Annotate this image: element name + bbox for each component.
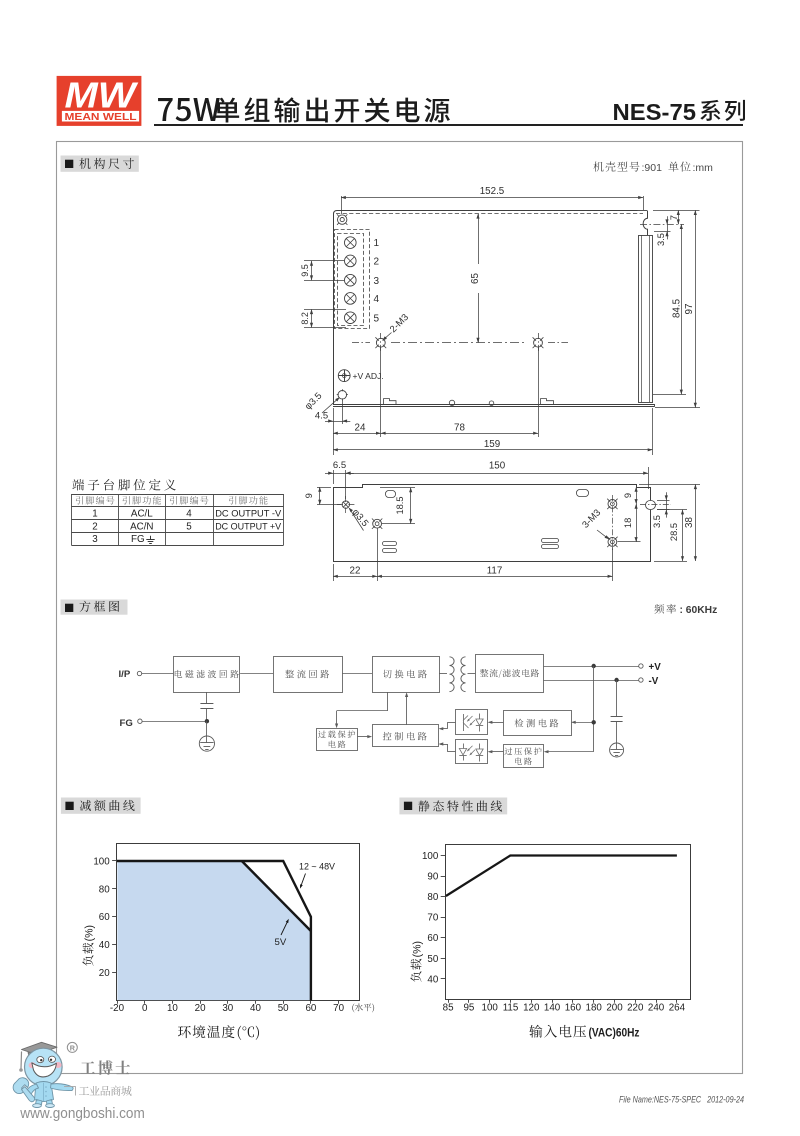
svg-text:FG: FG bbox=[120, 718, 133, 729]
svg-text:-V: -V bbox=[649, 676, 659, 687]
svg-text:(VAC)60Hz: (VAC)60Hz bbox=[589, 1026, 640, 1040]
svg-text:30: 30 bbox=[222, 1003, 233, 1014]
svg-text:100: 100 bbox=[422, 851, 439, 862]
svg-text:AC/L: AC/L bbox=[131, 509, 153, 520]
svg-text:5: 5 bbox=[374, 313, 380, 324]
svg-text:40: 40 bbox=[427, 974, 438, 985]
svg-text:R: R bbox=[70, 1044, 76, 1053]
svg-text:4: 4 bbox=[186, 509, 192, 520]
svg-text:5: 5 bbox=[186, 521, 192, 532]
svg-text:DC OUTPUT -V: DC OUTPUT -V bbox=[215, 509, 282, 520]
svg-text:90: 90 bbox=[427, 872, 438, 883]
svg-text:60: 60 bbox=[427, 933, 438, 944]
svg-text:65: 65 bbox=[470, 273, 481, 284]
svg-text:1: 1 bbox=[92, 509, 97, 520]
svg-text:0: 0 bbox=[142, 1003, 148, 1014]
svg-text:50: 50 bbox=[278, 1003, 289, 1014]
svg-text:3: 3 bbox=[92, 534, 98, 545]
svg-text:20: 20 bbox=[195, 1003, 206, 1014]
svg-text:FG: FG bbox=[131, 534, 145, 545]
svg-text:3.5: 3.5 bbox=[652, 515, 662, 528]
svg-text:180: 180 bbox=[586, 1003, 603, 1014]
svg-text:70: 70 bbox=[333, 1003, 344, 1014]
svg-text:84.5: 84.5 bbox=[671, 298, 682, 318]
svg-text:1: 1 bbox=[374, 238, 380, 249]
svg-text:100: 100 bbox=[482, 1003, 499, 1014]
svg-text:10: 10 bbox=[167, 1003, 178, 1014]
svg-text:8.2: 8.2 bbox=[300, 312, 310, 325]
svg-text:220: 220 bbox=[627, 1003, 644, 1014]
svg-text:+V ADJ.: +V ADJ. bbox=[353, 371, 384, 381]
svg-text:20: 20 bbox=[99, 968, 110, 979]
svg-text:22: 22 bbox=[350, 566, 361, 577]
svg-text:80: 80 bbox=[99, 884, 110, 895]
svg-text:152.5: 152.5 bbox=[480, 186, 505, 197]
svg-text:File Name:NES-75-SPEC 2012-0: File Name:NES-75-SPEC 2012-09-24 bbox=[619, 1094, 744, 1105]
svg-text:+V: +V bbox=[649, 662, 662, 673]
svg-text:24: 24 bbox=[355, 423, 366, 434]
svg-text:38: 38 bbox=[684, 517, 695, 528]
svg-text:18: 18 bbox=[623, 518, 633, 528]
svg-text:9.5: 9.5 bbox=[300, 264, 310, 277]
svg-text:9: 9 bbox=[304, 493, 314, 498]
svg-text:www.gongboshi.com: www.gongboshi.com bbox=[19, 1105, 144, 1122]
svg-text:5V: 5V bbox=[275, 937, 287, 948]
svg-text:95: 95 bbox=[463, 1003, 474, 1014]
svg-text:3.5: 3.5 bbox=[656, 233, 666, 246]
svg-text:200: 200 bbox=[606, 1003, 623, 1014]
svg-text:I/P: I/P bbox=[119, 669, 131, 680]
svg-text:AC/N: AC/N bbox=[130, 521, 153, 532]
svg-text:18.5: 18.5 bbox=[395, 496, 405, 514]
svg-text:78: 78 bbox=[454, 423, 465, 434]
svg-text:120: 120 bbox=[523, 1003, 540, 1014]
svg-text:60: 60 bbox=[305, 1003, 316, 1014]
svg-text:140: 140 bbox=[544, 1003, 561, 1014]
svg-text:2: 2 bbox=[92, 521, 97, 532]
svg-text:7: 7 bbox=[669, 215, 679, 220]
svg-text:MW: MW bbox=[65, 75, 140, 116]
svg-text:80: 80 bbox=[427, 892, 438, 903]
svg-text:: 60KHz: : 60KHz bbox=[680, 605, 718, 616]
svg-text:(%): (%) bbox=[84, 925, 96, 941]
svg-text:-20: -20 bbox=[110, 1003, 125, 1014]
svg-text:DC OUTPUT +V: DC OUTPUT +V bbox=[215, 521, 282, 532]
svg-text:70: 70 bbox=[427, 913, 438, 924]
svg-text:115: 115 bbox=[503, 1003, 519, 1014]
svg-text:2: 2 bbox=[374, 257, 380, 268]
svg-text:9: 9 bbox=[623, 493, 633, 498]
svg-text:12 ~ 48V: 12 ~ 48V bbox=[299, 861, 336, 872]
svg-text:60: 60 bbox=[99, 912, 110, 923]
svg-text:97: 97 bbox=[684, 304, 695, 315]
svg-text:159: 159 bbox=[484, 439, 500, 450]
svg-text:240: 240 bbox=[648, 1003, 665, 1014]
svg-text:40: 40 bbox=[99, 940, 110, 951]
svg-text:MEAN WELL: MEAN WELL bbox=[65, 112, 137, 123]
svg-text:3: 3 bbox=[374, 276, 380, 287]
svg-text::mm: :mm bbox=[693, 162, 714, 174]
svg-text:6.5: 6.5 bbox=[333, 460, 346, 471]
svg-text:NES-75: NES-75 bbox=[613, 99, 697, 125]
svg-text:4.5: 4.5 bbox=[315, 411, 328, 422]
svg-text:264: 264 bbox=[669, 1003, 686, 1014]
svg-text:100: 100 bbox=[93, 856, 110, 867]
svg-text:28.5: 28.5 bbox=[669, 523, 679, 541]
svg-text:160: 160 bbox=[565, 1003, 582, 1014]
svg-text:150: 150 bbox=[489, 461, 506, 472]
svg-text:117: 117 bbox=[487, 566, 503, 577]
svg-text:(%): (%) bbox=[412, 941, 424, 957]
svg-text:50: 50 bbox=[427, 954, 438, 965]
svg-text::901: :901 bbox=[642, 162, 663, 174]
svg-text:40: 40 bbox=[250, 1003, 261, 1014]
svg-text:4: 4 bbox=[374, 294, 380, 305]
svg-text:85: 85 bbox=[443, 1003, 454, 1014]
